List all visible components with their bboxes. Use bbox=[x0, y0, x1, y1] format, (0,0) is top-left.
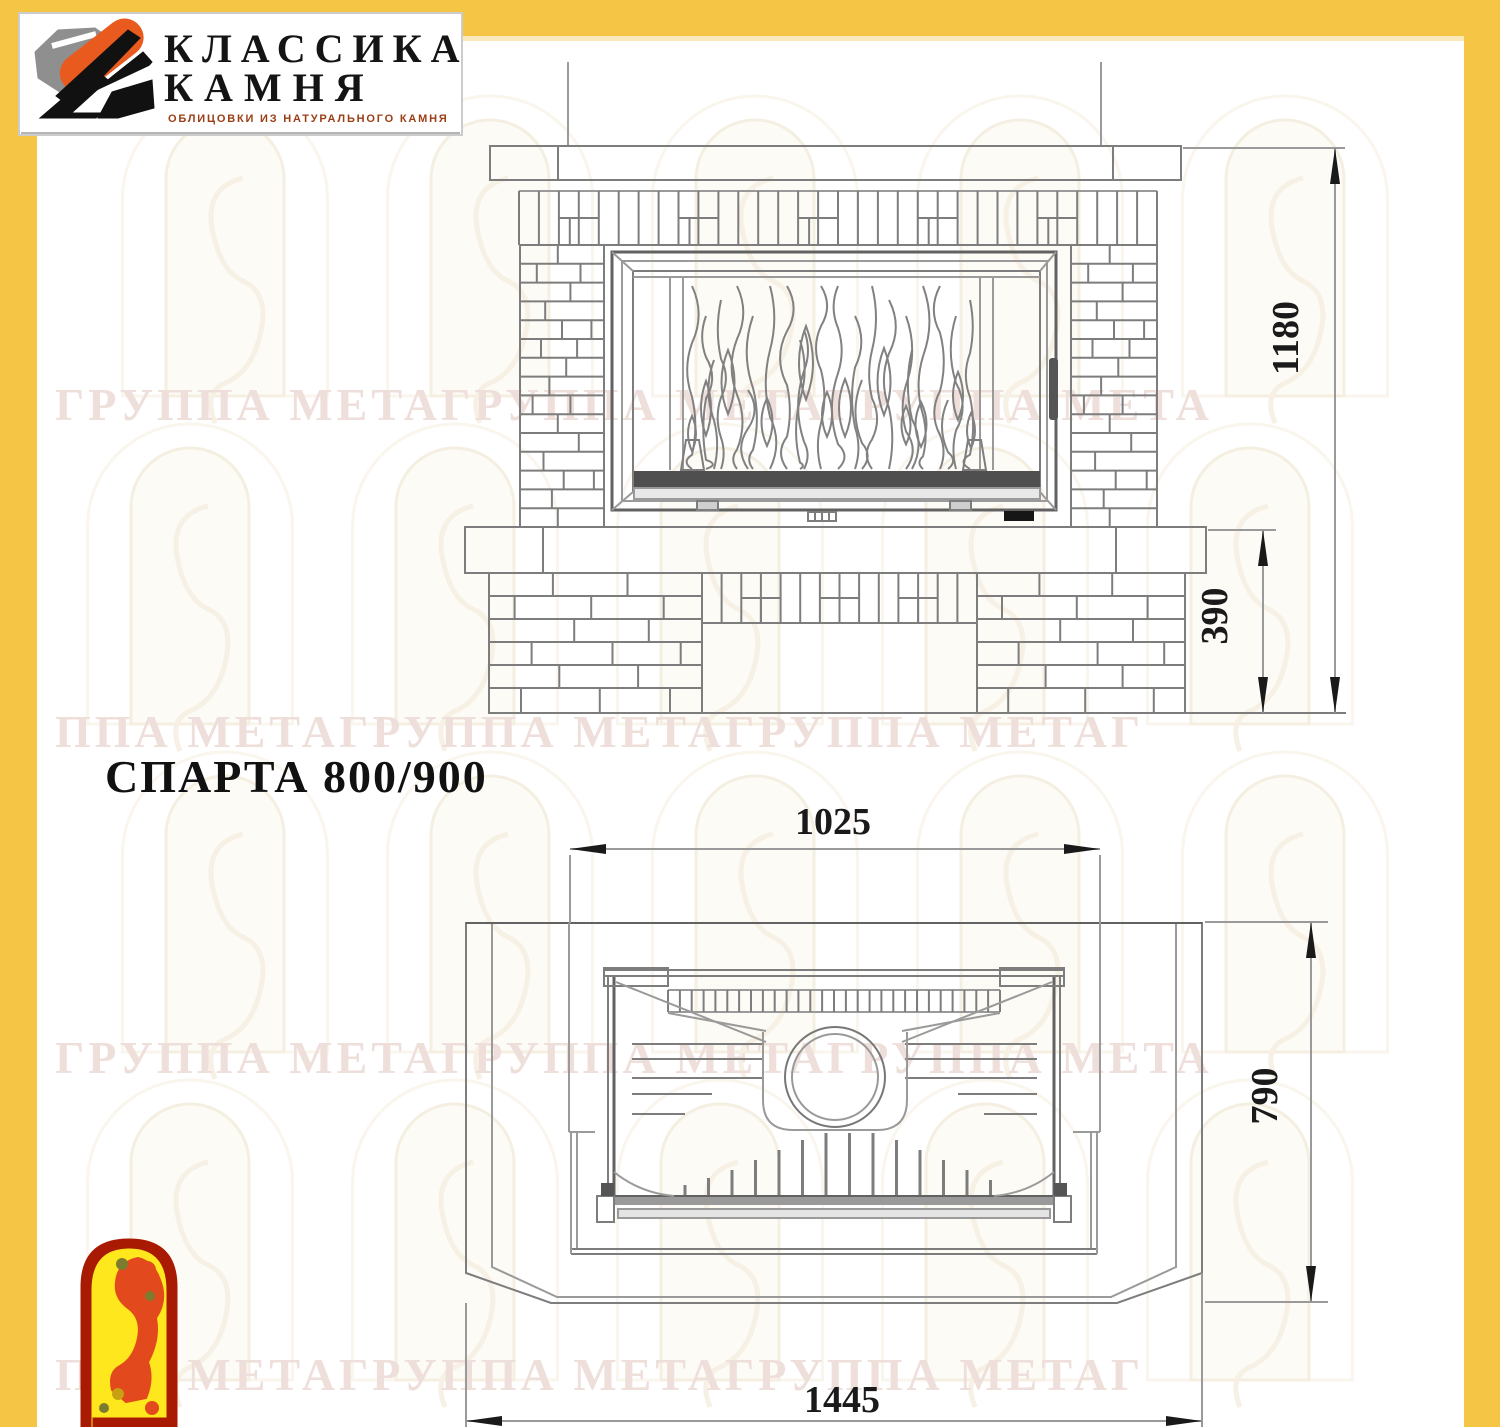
svg-text:КАМНЯ: КАМНЯ bbox=[164, 65, 375, 110]
svg-text:1180: 1180 bbox=[1265, 301, 1307, 375]
svg-text:СПАРТА 800/900: СПАРТА 800/900 bbox=[105, 751, 488, 802]
svg-text:1025: 1025 bbox=[795, 801, 871, 843]
svg-text:1445: 1445 bbox=[804, 1379, 880, 1421]
svg-text:390: 390 bbox=[1194, 588, 1236, 645]
svg-text:ГРУППА МЕТАГРУППА МЕТАГРУППА М: ГРУППА МЕТАГРУППА МЕТАГРУППА МЕТА bbox=[55, 1032, 1213, 1083]
svg-text:790: 790 bbox=[1244, 1068, 1286, 1125]
svg-text:ОБЛИЦОВКИ ИЗ НАТУРАЛЬНОГО КАМН: ОБЛИЦОВКИ ИЗ НАТУРАЛЬНОГО КАМНЯ bbox=[168, 113, 449, 125]
svg-text:ППА МЕТАГРУППА МЕТАГРУППА МЕТА: ППА МЕТАГРУППА МЕТАГРУППА МЕТАГ bbox=[55, 1349, 1144, 1400]
